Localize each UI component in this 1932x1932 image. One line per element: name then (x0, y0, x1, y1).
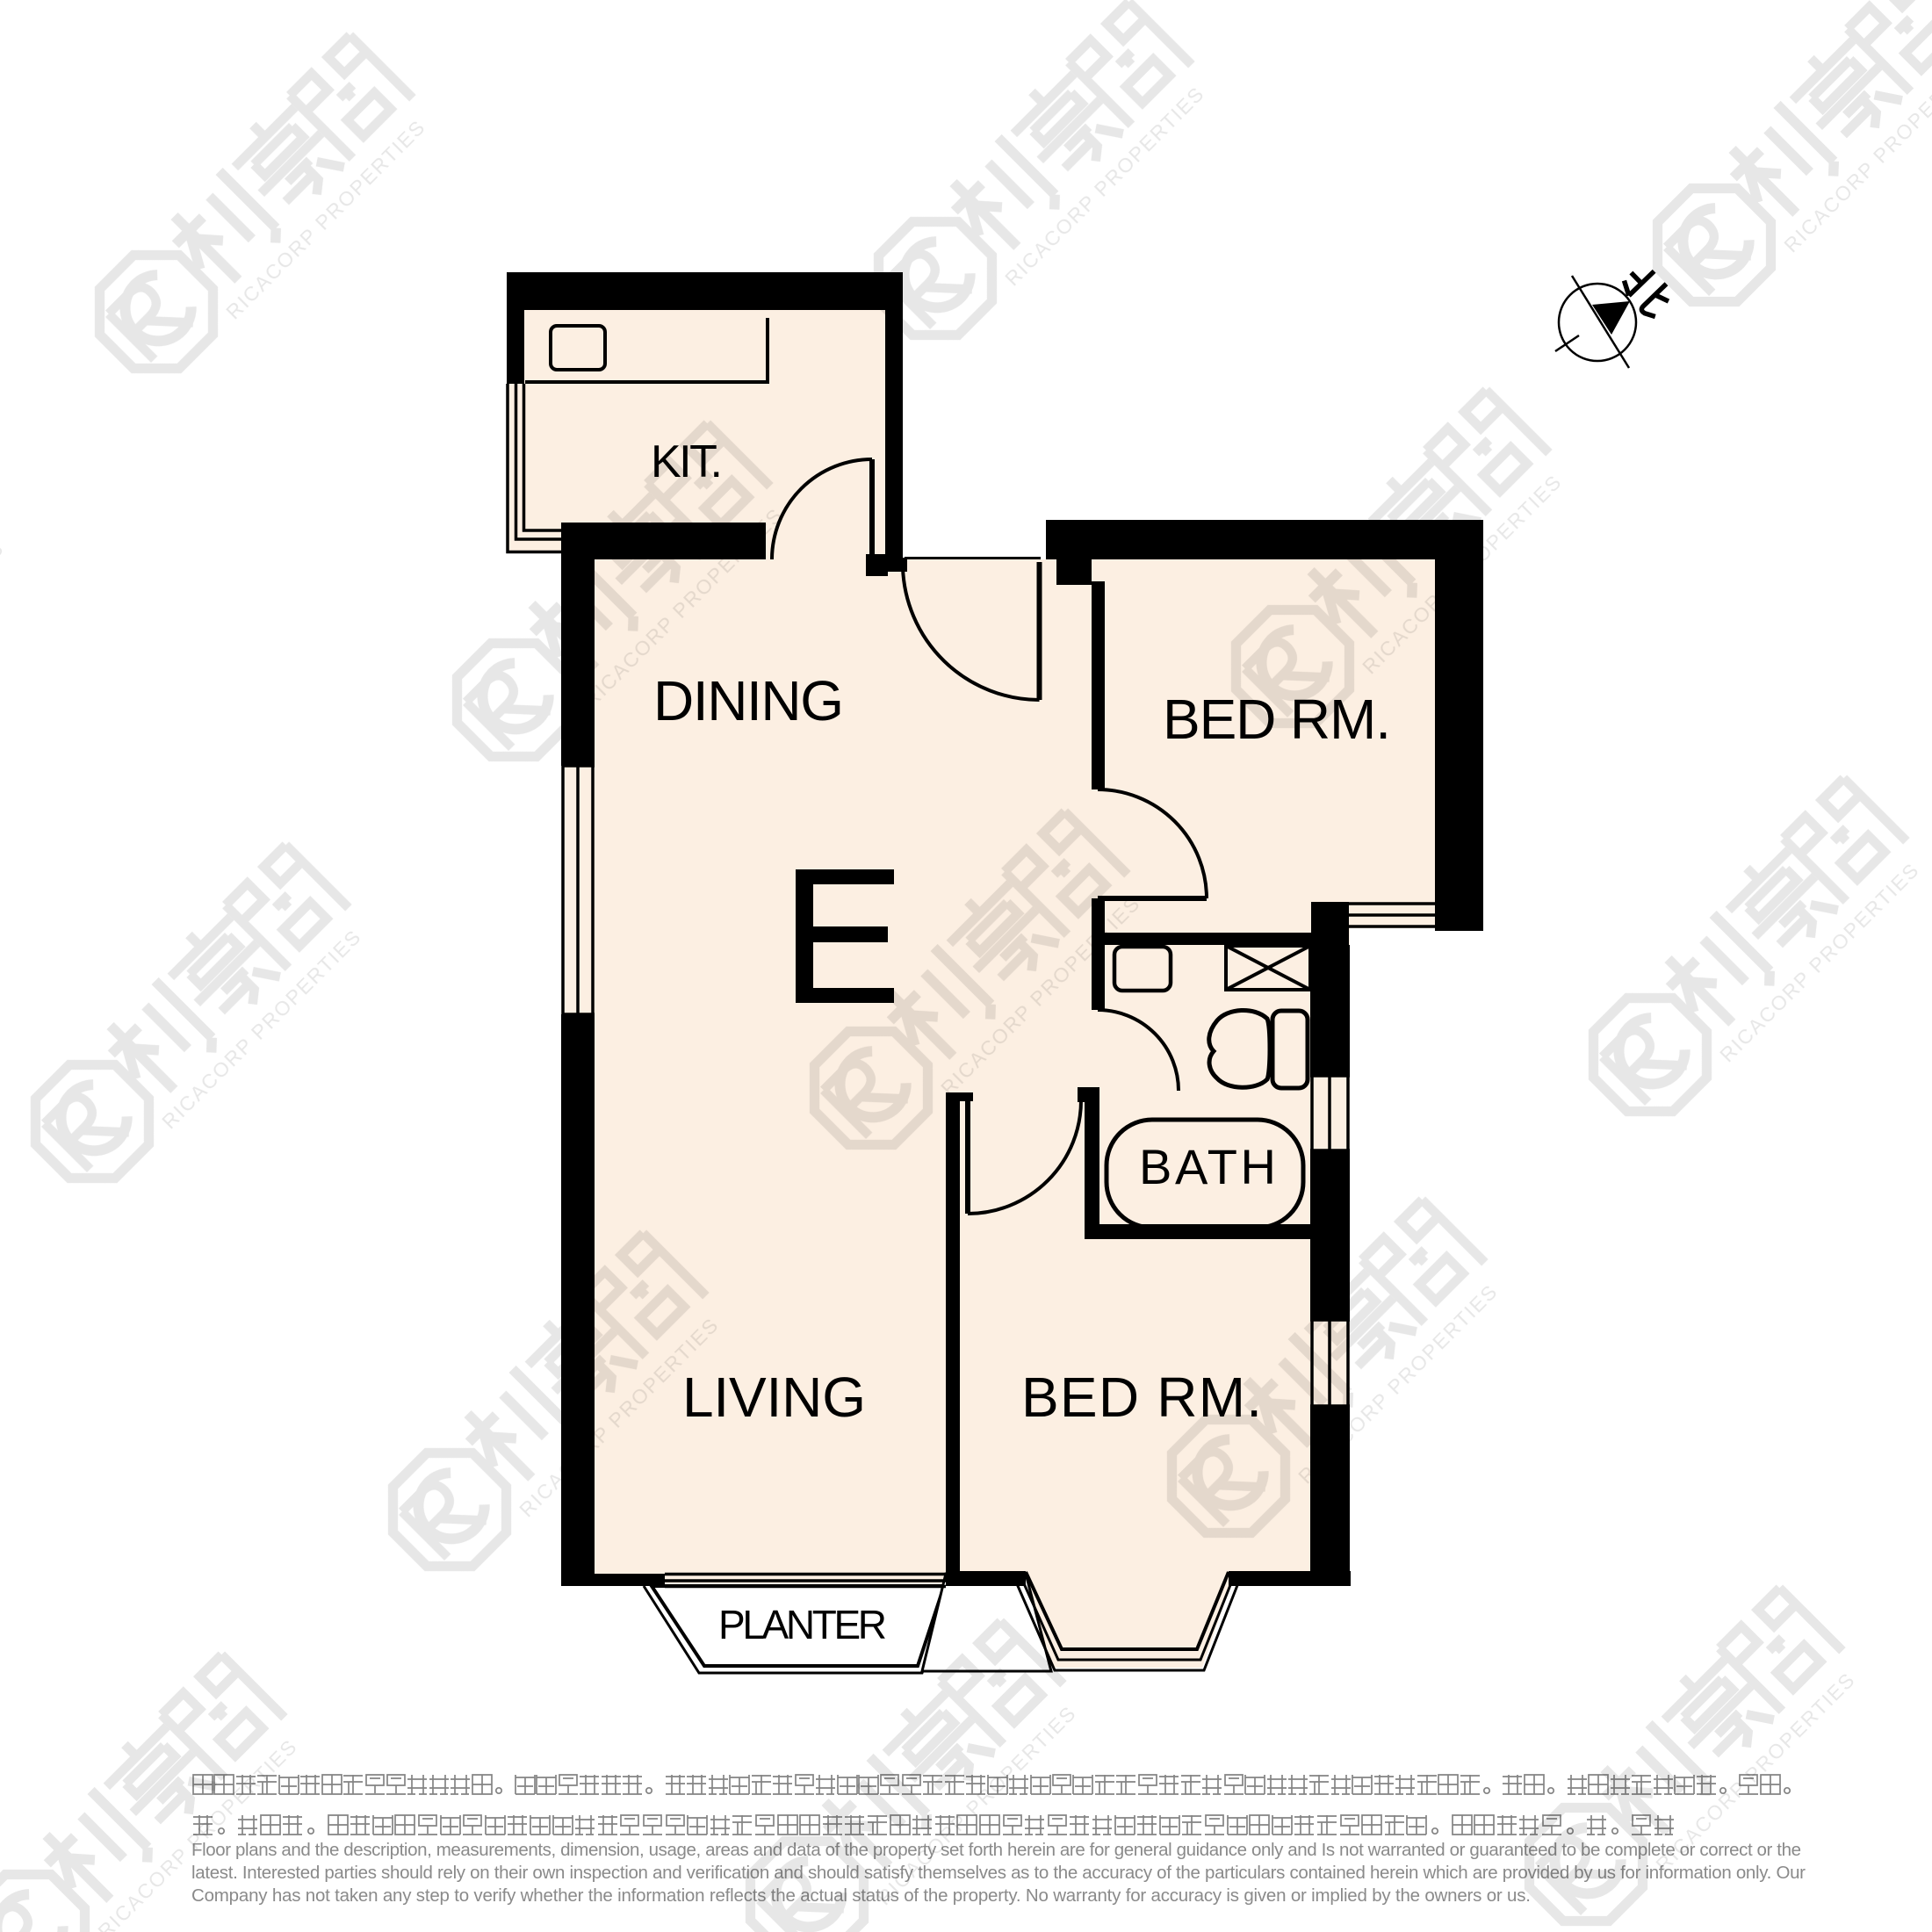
svg-text:DINING: DINING (653, 669, 844, 732)
svg-text:PLANTER: PLANTER (718, 1602, 887, 1647)
svg-text:LIVING: LIVING (682, 1366, 866, 1429)
svg-text:BATH: BATH (1139, 1139, 1276, 1194)
